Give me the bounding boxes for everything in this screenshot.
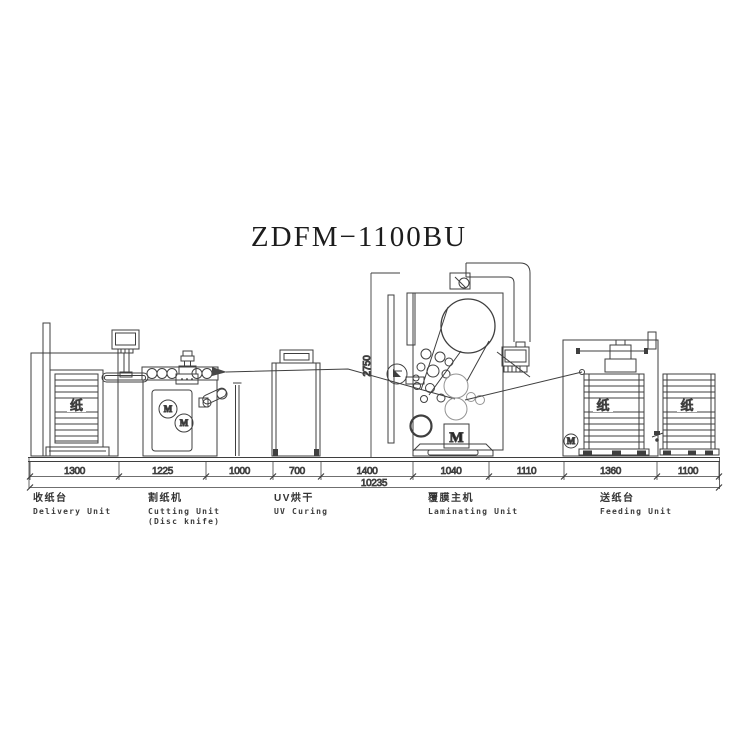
laminator-top-bracket <box>450 273 470 289</box>
laminating-unit: 2750 <box>362 263 530 458</box>
uv-cap <box>280 350 313 363</box>
label-en: Delivery Unit <box>33 507 111 516</box>
dim-segment-7: 1360 <box>600 466 622 477</box>
label-en: Feeding Unit <box>600 507 672 516</box>
paper-glyph: 纸 <box>70 398 83 413</box>
floor-line <box>28 458 720 462</box>
dim-segment-8: 1100 <box>678 466 699 477</box>
label-feeding-unit: 送纸台 Feeding Unit <box>600 489 672 516</box>
film-roll <box>387 364 407 384</box>
laminator-monitor <box>502 347 529 372</box>
label-zh: UV烘干 <box>274 489 328 504</box>
laminator-inner-column <box>407 293 415 345</box>
feeder-paper-stack: 纸 <box>584 374 644 449</box>
label-laminating-unit: 覆膜主机 Laminating Unit <box>428 489 518 516</box>
rewind-roller <box>411 416 432 437</box>
paper-glyph: 纸 <box>596 398 609 413</box>
motor-glyph: M <box>180 418 189 428</box>
dim-segment-4: 1400 <box>356 466 378 477</box>
label-en: Laminating Unit <box>428 507 518 516</box>
dim-segment-3: 700 <box>289 466 306 477</box>
machine-line-drawing-page: ZDFM−1100BU 纸 <box>0 0 750 750</box>
cutter-motor-circle-2: M <box>175 414 193 432</box>
label-delivery-unit: 收纸台 Delivery Unit <box>33 489 111 516</box>
label-zh: 覆膜主机 <box>428 489 518 504</box>
web-guide-flag <box>212 367 227 376</box>
delivery-unit: 纸 <box>31 323 148 456</box>
cutter-arm <box>199 387 228 407</box>
delivery-post <box>43 323 50 456</box>
cutter-motor-circle-1: M <box>159 400 177 418</box>
dim-segment-6: 1110 <box>517 466 537 477</box>
label-cutting-unit: 割纸机 Cutting Unit (Disc knife) <box>148 489 220 526</box>
spare-paper-stack: 纸 <box>652 374 719 455</box>
dim-segment-1: 1225 <box>152 466 174 477</box>
dim-segment-2: 1000 <box>229 466 251 477</box>
cutting-unit: M M <box>142 351 228 456</box>
delivery-paper-stack: 纸 <box>50 370 103 447</box>
label-en: Cutting Unit <box>148 507 220 516</box>
motor-glyph: M <box>567 436 576 446</box>
suction-head <box>605 340 636 372</box>
height-extension-line <box>371 273 400 458</box>
dim-total: 10235 <box>361 478 388 489</box>
machine-diagram: 纸 <box>0 0 750 750</box>
label-zh: 收纸台 <box>33 489 111 504</box>
motor-glyph: M <box>164 404 173 414</box>
uv-curing-unit <box>272 350 320 456</box>
feeder-pallet <box>579 449 649 455</box>
dim-segment-5: 1040 <box>440 466 462 477</box>
label-uv-curing: UV烘干 UV Curing <box>274 489 328 516</box>
label-en2: (Disc knife) <box>148 517 220 526</box>
label-zh: 送纸台 <box>600 489 672 504</box>
height-dimension: 2750 <box>362 355 373 377</box>
feeding-unit: 纸 M <box>563 332 658 456</box>
overhead-arm <box>466 263 530 347</box>
label-zh: 割纸机 <box>148 489 220 504</box>
label-en: UV Curing <box>274 507 328 516</box>
dim-segment-0: 1300 <box>64 466 86 477</box>
feeder-motor-circle: M <box>564 434 578 448</box>
paper-glyph: 纸 <box>680 398 693 413</box>
support-column <box>233 383 242 456</box>
dimension-bar: 1300 1225 1000 700 1400 1040 1110 1360 1… <box>27 458 722 491</box>
spare-pallet <box>660 449 719 455</box>
paper-web-line-right <box>465 372 582 400</box>
